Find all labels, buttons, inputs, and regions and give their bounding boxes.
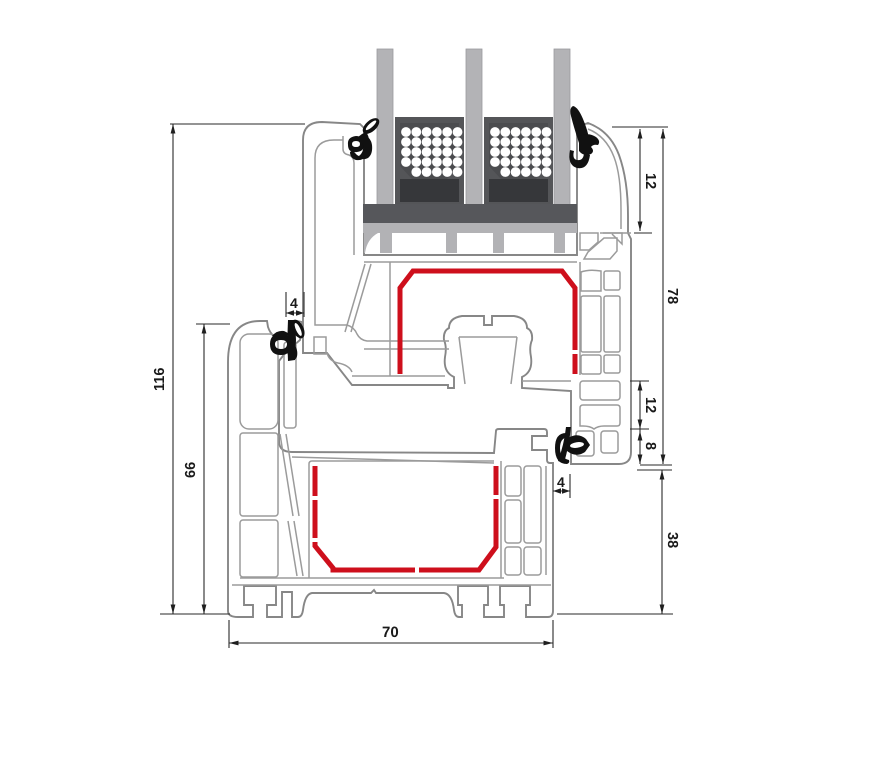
svg-text:70: 70 — [382, 624, 399, 641]
svg-text:66: 66 — [183, 462, 199, 478]
svg-text:38: 38 — [664, 532, 680, 548]
svg-text:12: 12 — [642, 173, 658, 189]
svg-text:116: 116 — [152, 368, 168, 391]
svg-text:4: 4 — [557, 474, 565, 490]
svg-text:4: 4 — [290, 295, 298, 311]
svg-text:12: 12 — [642, 397, 658, 413]
svg-text:78: 78 — [664, 288, 680, 304]
svg-text:8: 8 — [642, 442, 658, 450]
